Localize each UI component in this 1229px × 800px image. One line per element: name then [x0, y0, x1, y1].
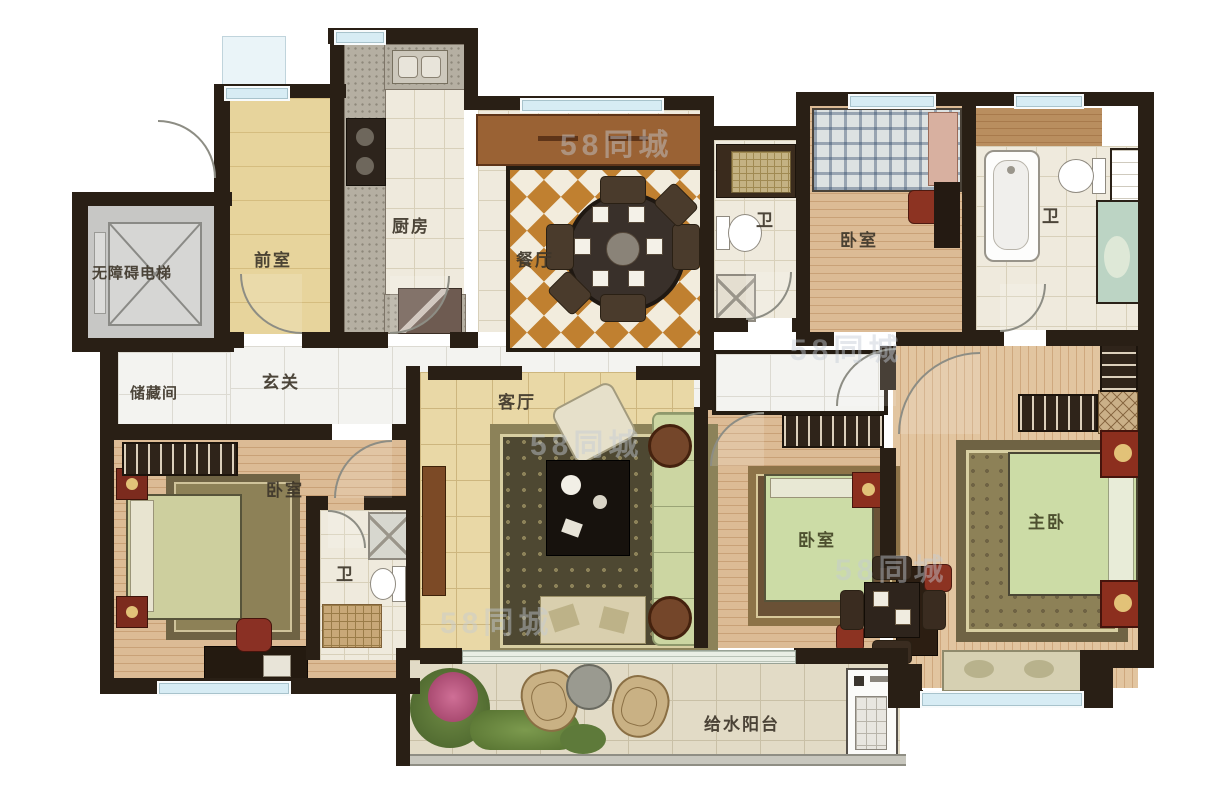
bedroom-top-bed [812, 108, 962, 192]
kitchen-stove [346, 118, 386, 186]
window [920, 691, 1084, 708]
closet-master-top [1018, 394, 1098, 432]
label-bedroom-bl: 卧室 [266, 476, 304, 501]
label-living: 客厅 [498, 388, 536, 413]
desk-chair [236, 618, 272, 652]
bath3-toilet [370, 562, 406, 604]
bath3-vanity [322, 604, 382, 648]
bath2-shower [1096, 200, 1140, 304]
living-bench [540, 596, 646, 644]
label-bath-1: 卫 [756, 206, 775, 231]
label-storage: 储藏间 [130, 382, 178, 403]
window [157, 681, 291, 696]
master-bench [942, 650, 1086, 692]
bath2-toilet [1056, 156, 1106, 194]
wardrobe-bl [122, 442, 238, 476]
bath2-dressing-strip [976, 108, 1102, 146]
label-master: 主卧 [1028, 508, 1066, 533]
dining-centerpiece [606, 232, 640, 266]
bed-pillows [928, 112, 958, 186]
watermark: 58同城 [530, 420, 643, 464]
bath2-shelf [1110, 148, 1140, 204]
tea-table [864, 582, 920, 638]
kitchen-counter-left [344, 44, 386, 334]
label-bedroom-3: 卧室 [798, 526, 836, 551]
label-foyer: 玄关 [262, 368, 300, 393]
nightstand [116, 596, 148, 628]
balcony-table [566, 664, 612, 710]
label-bath-3: 卫 [336, 560, 355, 585]
window [334, 30, 386, 45]
balcony-sliding-door [462, 650, 796, 664]
label-bedroom-top: 卧室 [840, 226, 878, 251]
master-plant [1098, 390, 1138, 434]
label-kitchen: 厨房 [392, 212, 430, 237]
bath3-shower [368, 512, 410, 560]
side-table-bottom [648, 596, 692, 640]
door-arc [158, 120, 216, 178]
window [1014, 94, 1084, 109]
bath2-bathtub [984, 150, 1040, 262]
bath1-vanity [716, 144, 796, 198]
label-dining: 餐厅 [516, 246, 554, 271]
bedroom-top-desk [934, 182, 960, 248]
watermark: 58同城 [790, 325, 903, 369]
label-bath-2: 卫 [1042, 202, 1061, 227]
window [520, 98, 664, 113]
watermark: 58同城 [440, 598, 553, 642]
window [224, 86, 290, 101]
kitchen-sink [392, 50, 448, 84]
lobby-glass [222, 36, 286, 86]
coffee-table [546, 460, 630, 556]
balcony-railing [404, 754, 906, 766]
label-balcony: 给水阳台 [704, 710, 780, 735]
wardrobe-bed3 [782, 414, 884, 448]
tv-console [422, 466, 446, 596]
watermark: 58同城 [835, 545, 948, 589]
watermark: 58同城 [560, 120, 673, 164]
floor-plan: 无障碍电梯 前室 厨房 餐厅 卫 卧室 卫 储藏间 玄关 客厅 卧室 卫 卧室 … [0, 0, 1229, 800]
label-front-room: 前室 [254, 246, 292, 271]
label-elevator: 无障碍电梯 [92, 262, 172, 283]
side-table-top [648, 424, 692, 468]
window [848, 94, 936, 109]
kitchen-floor [384, 88, 464, 298]
